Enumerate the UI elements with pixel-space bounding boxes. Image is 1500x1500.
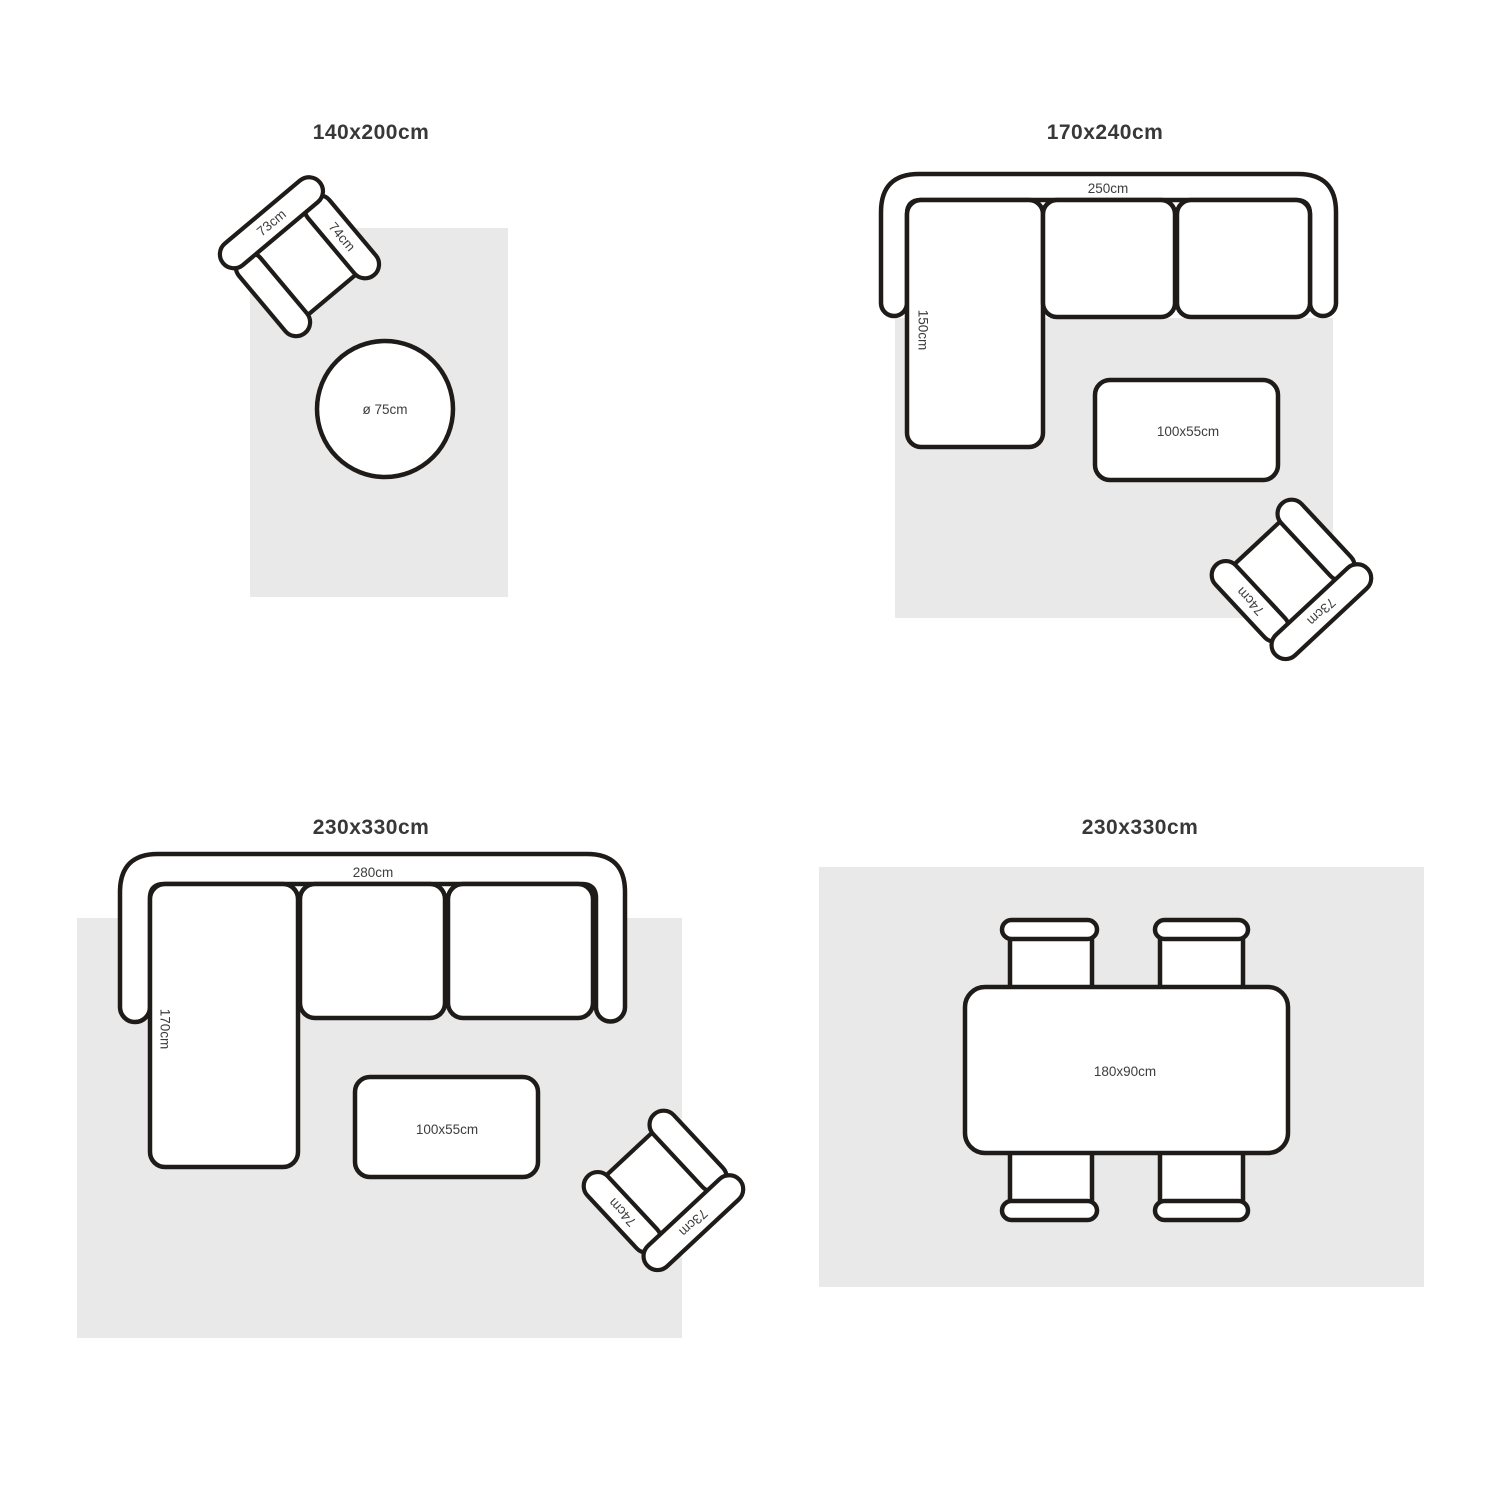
rug-size-guide-canvas: 140x200cm 73cm 74cm ø 75cm 170x240cm 250… bbox=[0, 0, 1500, 1500]
size-panel-230x330-living: 230x330cm 280cm 170cm 100x55cm 73cm 74cm bbox=[77, 816, 749, 1338]
sofa-width-dimension: 280cm bbox=[353, 865, 394, 880]
panel-title: 230x330cm bbox=[313, 816, 430, 839]
dining-chair-bottom-right bbox=[1155, 1152, 1248, 1220]
panel-title: 140x200cm bbox=[313, 121, 430, 144]
dining-chair-top-left bbox=[1002, 920, 1097, 988]
sofa-right-cushion bbox=[1177, 200, 1310, 317]
chair-backrest bbox=[1155, 1201, 1248, 1220]
dining-chair-top-right bbox=[1155, 920, 1248, 988]
sofa-middle-cushion bbox=[1043, 200, 1175, 317]
sofa-right-cushion bbox=[448, 884, 593, 1018]
chair-seat bbox=[1010, 1152, 1092, 1202]
chaise-depth-dimension: 150cm bbox=[916, 310, 931, 351]
chair-seat bbox=[1010, 938, 1092, 988]
coffee-table: 100x55cm bbox=[1095, 380, 1278, 480]
panel-title: 170x240cm bbox=[1047, 121, 1164, 144]
dining-table-dimension: 180x90cm bbox=[1094, 1064, 1156, 1079]
round-table-dimension: ø 75cm bbox=[362, 402, 407, 417]
dining-chair-bottom-left bbox=[1002, 1152, 1097, 1220]
sofa-width-dimension: 250cm bbox=[1088, 181, 1129, 196]
dining-table: 180x90cm bbox=[965, 987, 1288, 1153]
chair-seat bbox=[1160, 1152, 1243, 1202]
chair-seat bbox=[1160, 938, 1243, 988]
coffee-table-dimension: 100x55cm bbox=[416, 1122, 478, 1137]
chair-backrest bbox=[1155, 920, 1248, 939]
chaise-depth-dimension: 170cm bbox=[158, 1009, 173, 1050]
size-panel-170x240: 170x240cm 250cm 150cm 100x55cm 73cm 74cm bbox=[881, 121, 1377, 665]
coffee-table-dimension: 100x55cm bbox=[1157, 424, 1219, 439]
chair-backrest bbox=[1002, 1201, 1097, 1220]
size-panel-230x330-dining: 230x330cm 180x90cm bbox=[819, 816, 1424, 1287]
rug-size-guide: 140x200cm 73cm 74cm ø 75cm 170x240cm 250… bbox=[0, 0, 1500, 1500]
chair-backrest bbox=[1002, 920, 1097, 939]
panel-title: 230x330cm bbox=[1082, 816, 1199, 839]
sofa-middle-cushion bbox=[300, 884, 445, 1018]
coffee-table: 100x55cm bbox=[355, 1077, 538, 1177]
size-panel-140x200: 140x200cm 73cm 74cm ø 75cm bbox=[214, 121, 508, 597]
round-side-table: ø 75cm bbox=[317, 341, 453, 477]
